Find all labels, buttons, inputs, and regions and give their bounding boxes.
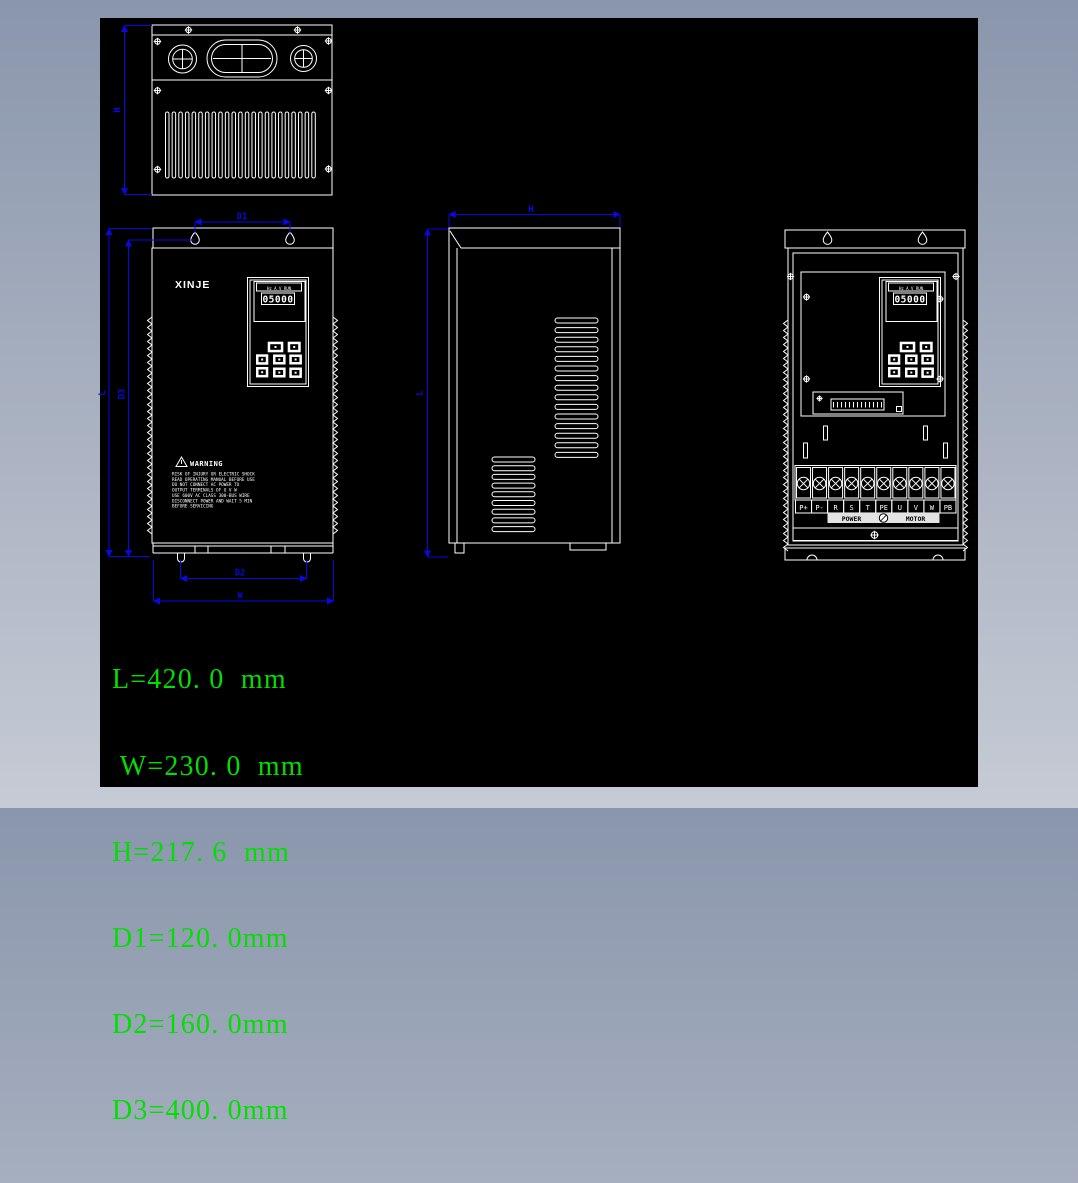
cable-knockout-right-icon <box>291 46 317 72</box>
terminal-label: P+ <box>799 504 807 512</box>
keyhole-slot-icon <box>191 232 200 244</box>
warning-title: WARNING <box>190 460 223 468</box>
mounting-foot <box>455 543 464 553</box>
warning-text-line: DO NOT CONNECT AC POWER TO <box>172 482 240 488</box>
warning-text-line: OUTPUT TERMINALS OF U V W <box>172 488 237 494</box>
rear-view-drawing: Hz A V RUN05000 P+P-RSTPEUVWPB POWER MOT… <box>784 230 968 560</box>
warning-text-line: DISCONNECT POWER AND WAIT 5 MIN <box>172 498 253 504</box>
readout-line-d1: D1=120. 0mm <box>112 925 304 954</box>
dim-h-side: H <box>449 205 620 229</box>
dim-d1: D1 <box>195 212 290 233</box>
warning-label: WARNING RISK OF INJURY OR ELECTRIC SHOCK… <box>172 457 255 510</box>
rear-keypad-panel: Hz A V RUN05000 <box>880 278 941 387</box>
seven-segment-display: 05000 <box>262 294 293 305</box>
terminal-label: P- <box>815 504 823 512</box>
terminal-label: PE <box>880 504 888 512</box>
dim-h-top-view: H <box>113 26 152 195</box>
ground-symbol-icon <box>879 514 887 522</box>
warning-text-line: RISK OF INJURY OR ELECTRIC SHOCK <box>172 472 255 478</box>
readout-line-d2: D2=160. 0mm <box>112 1011 304 1040</box>
keyhole-slot-icon <box>918 232 927 244</box>
terminal-label: R <box>833 504 838 512</box>
rear-bottom-bracket <box>785 548 965 560</box>
power-terminals-label: POWER <box>842 515 862 523</box>
warning-text-line: READ OPERATING MANUAL BEFORE USE <box>172 477 255 483</box>
dim-label-d2: D2 <box>235 569 245 579</box>
dim-label-w: W <box>237 591 243 601</box>
display-indicator-labels: Hz A V RUN <box>899 286 924 291</box>
warning-text-block: RISK OF INJURY OR ELECTRIC SHOCKREAD OPE… <box>172 472 255 510</box>
warning-text-line: USE 600V AC CLASS 300-BUS WIRE <box>172 493 250 499</box>
top-view-drawing: H <box>113 25 332 195</box>
side-vent-slots <box>492 318 598 532</box>
terminal-label: PB <box>944 504 952 512</box>
dim-label-d1: D1 <box>237 212 247 222</box>
dim-d2: D2 <box>181 560 307 579</box>
readout-line-d3: D3=400. 0mm <box>112 1097 304 1126</box>
terminal-label: W <box>930 504 935 512</box>
dim-l-side: L <box>416 229 449 557</box>
front-keypad-panel: Hz A V RUN05000 <box>248 278 309 387</box>
motor-terminals-label: MOTOR <box>906 515 926 523</box>
front-bottom-bracket <box>153 543 333 562</box>
dim-label-l-side: L <box>416 390 426 396</box>
terminal-label: U <box>898 504 902 512</box>
dimension-readout: L=420. 0 mm W=230. 0 mm H=217. 6 mm D1=1… <box>112 609 304 1183</box>
terminal-block: P+P-RSTPEUVWPB <box>795 466 956 514</box>
cable-knockout-left-icon <box>169 45 197 73</box>
terminal-label: V <box>914 504 919 512</box>
readout-line-w: W=230. 0 mm <box>112 753 304 782</box>
cable-knockout-center-icon <box>207 40 277 77</box>
keyhole-slot-icon <box>286 232 295 244</box>
dim-label-h-side: H <box>528 205 533 215</box>
display-indicator-labels: Hz A V RUN <box>267 286 292 291</box>
keyhole-slot-icon <box>823 232 832 244</box>
dim-label-h: H <box>113 107 123 112</box>
mounting-foot <box>570 543 606 550</box>
readout-line-l: L=420. 0 mm <box>112 666 304 695</box>
brand-logo: XINJE <box>175 279 210 291</box>
terminal-label: S <box>850 504 854 512</box>
side-view-drawing: H L <box>416 205 621 557</box>
warning-text-line: BEFORE SERVICING <box>172 504 214 510</box>
terminal-label: T <box>866 504 871 512</box>
seven-segment-display: 05000 <box>894 294 925 305</box>
dim-label-d3: D3 <box>118 389 128 400</box>
readout-line-h: H=217. 6 mm <box>112 839 304 868</box>
dim-label-l: L <box>98 390 108 396</box>
front-view-drawing: XINJE Hz A V RUN05000 WARNING RISK OF IN… <box>98 212 338 601</box>
